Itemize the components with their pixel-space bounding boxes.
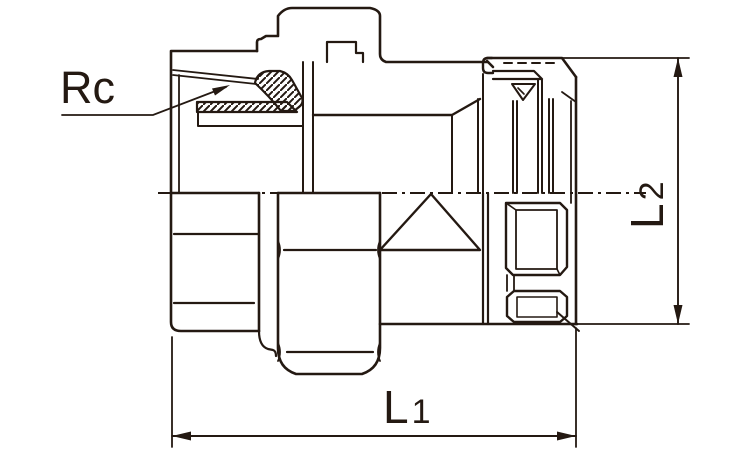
hex-chamfer-lines xyxy=(174,234,259,303)
labels: Rc L1 L2 xyxy=(60,62,673,433)
nut-lower-outline xyxy=(278,193,380,374)
l1-length-label: L1 xyxy=(383,381,431,433)
right-inner-chamfer xyxy=(562,92,576,102)
nut-notch xyxy=(327,42,363,62)
nut-vertex-arcs xyxy=(278,241,380,361)
technical-drawing-canvas: Rc L1 L2 xyxy=(0,0,750,450)
l1-dimension xyxy=(172,328,576,447)
pipe-wall-verticals xyxy=(303,62,313,193)
claw-hook-notch xyxy=(487,61,493,67)
lower-window-inner xyxy=(517,297,557,317)
l1-extension-lines xyxy=(172,328,576,447)
rc-leader-arrowhead xyxy=(212,85,230,96)
l1-left-arrowhead xyxy=(172,432,191,441)
right-top-edge xyxy=(487,58,576,77)
thread-taper-lines xyxy=(173,70,258,84)
rc-thread-label: Rc xyxy=(60,62,115,113)
l1-right-arrowhead xyxy=(557,432,576,441)
l2-top-arrowhead xyxy=(674,58,683,77)
upper-window-inner xyxy=(516,210,557,269)
cone-chamfer-triangle xyxy=(380,194,480,250)
right-lower-left-verticals xyxy=(483,193,488,324)
gasket-flange xyxy=(493,71,542,79)
pipe-shoulder xyxy=(313,99,480,115)
hex-foot-step xyxy=(259,331,276,356)
bore-step-line xyxy=(198,112,303,126)
serration-verticals xyxy=(452,74,553,193)
upper-window-bevels xyxy=(506,203,560,275)
nut-dome-profile xyxy=(257,8,488,62)
window-connector xyxy=(507,275,514,291)
pipe-union-fitting-drawing: Rc L1 L2 xyxy=(0,0,750,450)
nut-chamfer-lines xyxy=(284,250,376,352)
seal-triangle xyxy=(512,84,535,100)
hex-left-and-bottom xyxy=(171,193,259,331)
union-nut xyxy=(257,8,488,374)
left-body-upper-outline xyxy=(171,51,257,193)
l2-bottom-arrowhead xyxy=(674,305,683,324)
l2-height-label: L2 xyxy=(621,181,673,229)
